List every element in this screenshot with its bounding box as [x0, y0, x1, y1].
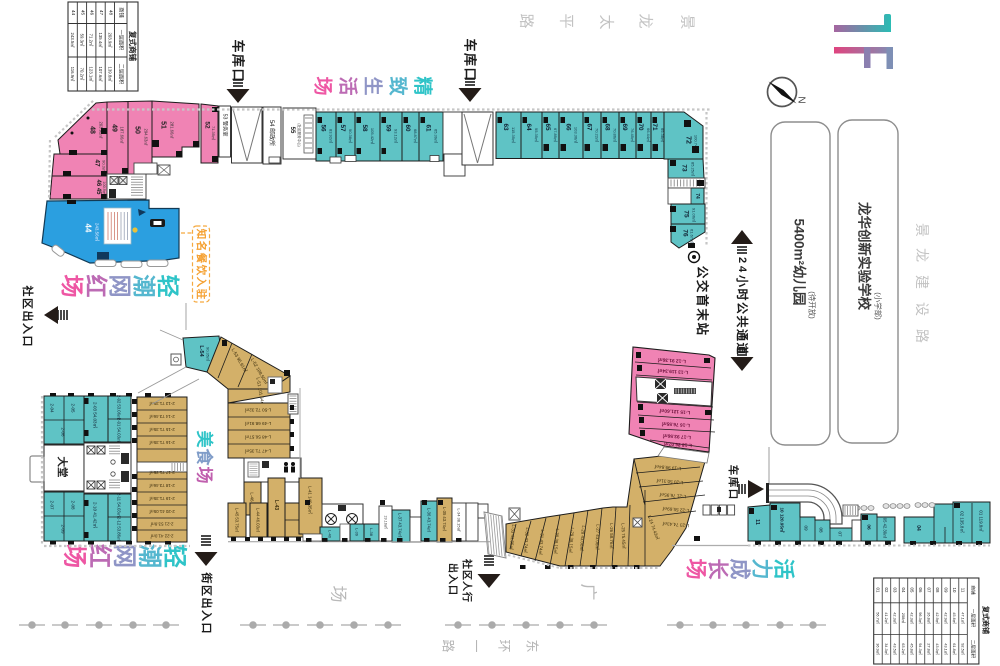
svg-text:55: 55: [289, 127, 295, 134]
svg-text:2-21 53.8㎡: 2-21 53.8㎡: [150, 522, 174, 528]
svg-text:2-22 41.0㎡: 2-22 41.0㎡: [150, 534, 174, 540]
svg-text:08: 08: [819, 527, 824, 533]
svg-text:2-04: 2-04: [50, 403, 55, 413]
svg-text:L-37 43.74㎡: L-37 43.74㎡: [398, 513, 404, 538]
svg-text:通: 通: [735, 329, 750, 341]
svg-text:243.56㎡: 243.56㎡: [95, 223, 101, 242]
svg-text:42.9㎡: 42.9㎡: [944, 612, 949, 624]
svg-text:65.39㎡: 65.39㎡: [434, 129, 440, 143]
svg-text:90.35㎡: 90.35㎡: [206, 347, 212, 361]
svg-text:库: 库: [727, 477, 740, 488]
svg-text:精: 精: [412, 76, 435, 95]
svg-text:车: 车: [463, 38, 478, 51]
svg-text:11: 11: [961, 588, 966, 593]
svg-text:70.86㎡: 70.86㎡: [613, 128, 619, 142]
svg-text:2-08: 2-08: [71, 500, 76, 510]
svg-text:商铺: 商铺: [970, 585, 977, 595]
svg-text:41.2㎡: 41.2㎡: [884, 612, 889, 624]
svg-text:187.66㎡: 187.66㎡: [120, 127, 126, 145]
svg-text:67: 67: [586, 123, 593, 131]
svg-text:63.2㎡: 63.2㎡: [901, 643, 906, 655]
svg-text:115.35㎡: 115.35㎡: [511, 127, 517, 143]
svg-text:2-03 54.03㎡: 2-03 54.03㎡: [93, 402, 99, 429]
svg-text:致: 致: [387, 76, 410, 96]
svg-text:57: 57: [339, 124, 346, 132]
svg-text:L-35 43.74㎡: L-35 43.74㎡: [442, 507, 448, 532]
svg-text:龙: 龙: [637, 13, 654, 28]
svg-text:网: 网: [107, 275, 133, 298]
svg-text:72: 72: [685, 136, 692, 144]
svg-text:(待开放): (待开放): [808, 291, 818, 319]
svg-text:04: 04: [915, 525, 921, 531]
svg-text:47: 47: [98, 10, 104, 16]
svg-text:42.3㎡: 42.3㎡: [892, 612, 897, 624]
svg-text:94.3㎡: 94.3㎡: [918, 643, 923, 655]
svg-text:70: 70: [637, 123, 644, 131]
svg-text:76: 76: [682, 229, 689, 237]
svg-text:L-50 72.32㎡: L-50 72.32㎡: [244, 408, 271, 414]
svg-text:2-07: 2-07: [50, 500, 55, 510]
svg-text:一层面积: 一层面积: [118, 30, 125, 51]
svg-text:美: 美: [195, 431, 215, 449]
svg-text:71: 71: [651, 123, 658, 131]
svg-text:48: 48: [89, 126, 96, 134]
svg-text:47.1㎡: 47.1㎡: [961, 612, 966, 624]
svg-text:驻: 驻: [195, 289, 208, 300]
svg-text:二层面积: 二层面积: [970, 640, 977, 659]
svg-text:2-11 54.03㎡: 2-11 54.03㎡: [117, 493, 123, 518]
svg-text:L-39: L-39: [355, 528, 360, 537]
svg-text:66: 66: [565, 123, 572, 131]
svg-text:公: 公: [735, 302, 749, 314]
svg-text:90.3㎡: 90.3㎡: [102, 160, 108, 172]
svg-text:75: 75: [683, 210, 690, 218]
svg-text:2-09: 2-09: [61, 524, 66, 534]
svg-text:10: 10: [952, 588, 957, 593]
svg-text:潮: 潮: [136, 544, 163, 568]
svg-text:食: 食: [195, 449, 215, 467]
svg-text:社: 社: [21, 285, 35, 297]
svg-text:活: 活: [337, 76, 360, 95]
svg-text:N: N: [796, 96, 807, 103]
svg-text:69: 69: [621, 123, 628, 131]
svg-text:L-38: L-38: [369, 528, 374, 537]
svg-text:44: 44: [84, 224, 93, 233]
svg-text:09: 09: [944, 588, 949, 593]
svg-text:07: 07: [838, 531, 843, 537]
svg-text:广: 广: [579, 584, 598, 601]
svg-text:场: 场: [684, 559, 707, 580]
svg-text:场: 场: [329, 586, 348, 603]
svg-text:L-26 58.76㎡: L-26 58.76㎡: [609, 523, 615, 549]
svg-text:56: 56: [320, 124, 327, 132]
svg-text:70.22㎡: 70.22㎡: [595, 128, 601, 142]
svg-text:48: 48: [107, 10, 113, 16]
svg-text:281.66㎡: 281.66㎡: [170, 122, 176, 140]
svg-text:53 警务室: 53 警务室: [222, 114, 230, 137]
svg-text:73: 73: [681, 164, 688, 172]
svg-text:54 邮政所: 54 邮政所: [268, 120, 276, 146]
svg-text:入: 入: [195, 277, 207, 288]
svg-text:52: 52: [204, 121, 211, 129]
svg-text:45.8㎡: 45.8㎡: [909, 643, 914, 655]
svg-text:03: 03: [892, 588, 897, 593]
svg-text:2-05: 2-05: [71, 403, 76, 413]
svg-text:潮: 潮: [131, 275, 157, 298]
svg-text:L-25 75.45㎡: L-25 75.45㎡: [621, 523, 628, 549]
svg-text:76.45㎡: 76.45㎡: [630, 128, 636, 142]
svg-text:街: 街: [200, 572, 214, 584]
svg-text:11: 11: [754, 519, 760, 525]
svg-text:5400m²幼儿园: 5400m²幼儿园: [792, 218, 808, 305]
svg-text:口: 口: [727, 489, 739, 500]
svg-text:路: 路: [914, 329, 930, 343]
svg-text:一层面积: 一层面积: [970, 609, 977, 628]
svg-text:43.5㎡: 43.5㎡: [892, 643, 897, 655]
svg-text:2-19 71.35㎡: 2-19 71.35㎡: [149, 496, 175, 502]
svg-text:60: 60: [404, 124, 411, 132]
svg-text:复式商铺: 复式商铺: [128, 30, 138, 61]
svg-text:59.3㎡: 59.3㎡: [80, 34, 86, 47]
svg-text:场: 场: [59, 275, 85, 298]
svg-text:L-45 53.75㎡: L-45 53.75㎡: [235, 508, 241, 533]
svg-text:(小学部): (小学部): [874, 292, 884, 320]
svg-text:71.2㎡: 71.2㎡: [89, 34, 95, 47]
svg-text:90.38㎡: 90.38㎡: [348, 129, 354, 143]
svg-text:116.9㎡: 116.9㎡: [70, 67, 76, 82]
svg-text:50: 50: [134, 126, 141, 134]
svg-text:景: 景: [679, 14, 696, 29]
svg-text:43.0㎡: 43.0㎡: [935, 643, 940, 655]
svg-text:26.8㎡: 26.8㎡: [927, 612, 932, 624]
svg-text:2: 2: [736, 257, 748, 263]
svg-text:路: 路: [518, 13, 535, 28]
svg-text:51: 51: [160, 121, 167, 129]
svg-text:知: 知: [195, 229, 208, 240]
svg-text:交: 交: [695, 280, 710, 293]
svg-text:2-16 71.35㎡: 2-16 71.35㎡: [149, 440, 175, 446]
svg-text:力: 力: [750, 559, 773, 580]
svg-text:区: 区: [461, 570, 473, 580]
svg-text:05: 05: [909, 588, 914, 593]
svg-text:2-14 73.46㎡: 2-14 73.46㎡: [149, 414, 175, 420]
svg-text:建: 建: [914, 275, 930, 289]
svg-text:42.9㎡: 42.9㎡: [935, 612, 940, 624]
svg-text:96.3㎡: 96.3㎡: [918, 612, 923, 624]
svg-text:61.67㎡: 61.67㎡: [690, 229, 696, 243]
svg-text:95.35㎡: 95.35㎡: [534, 128, 540, 142]
svg-text:车: 车: [727, 465, 740, 476]
svg-text:设: 设: [914, 302, 930, 316]
svg-text:(社区服务中心): (社区服务中心): [297, 123, 302, 146]
svg-text:L-47 71.35㎡: L-47 71.35㎡: [244, 449, 271, 455]
svg-text:34.3㎡: 34.3㎡: [884, 643, 889, 655]
svg-text:103.36㎡: 103.36㎡: [574, 127, 580, 143]
svg-text:成: 成: [728, 559, 752, 580]
svg-text:生: 生: [362, 76, 385, 95]
svg-text:2-20 41.05㎡: 2-20 41.05㎡: [149, 509, 175, 515]
svg-text:68.87㎡: 68.87㎡: [413, 129, 419, 143]
svg-text:243.5㎡: 243.5㎡: [70, 32, 76, 48]
svg-text:2-18 73.46㎡: 2-18 73.46㎡: [149, 483, 175, 489]
svg-text:时: 时: [735, 288, 750, 300]
svg-text:2-15 71.35㎡: 2-15 71.35㎡: [149, 427, 175, 433]
svg-text:出: 出: [200, 598, 214, 609]
svg-text:区: 区: [200, 585, 213, 596]
svg-text:01: 01: [875, 588, 880, 593]
svg-text:42.3㎡: 42.3㎡: [909, 612, 914, 624]
svg-text:库: 库: [231, 54, 246, 67]
svg-text:入: 入: [21, 323, 34, 334]
svg-text:路: 路: [441, 639, 456, 652]
svg-text:02 135.8㎡: 02 135.8㎡: [960, 511, 966, 533]
svg-text:43.1㎡: 43.1㎡: [944, 643, 949, 655]
svg-text:L-40: L-40: [328, 530, 333, 539]
svg-text:10 120.95㎡: 10 120.95㎡: [780, 507, 786, 532]
svg-text:大堂: 大堂: [56, 457, 69, 478]
svg-text:轻: 轻: [155, 275, 181, 298]
svg-text:名: 名: [195, 241, 208, 252]
svg-text:餐: 餐: [195, 252, 208, 264]
svg-text:场: 场: [312, 76, 334, 95]
svg-text:车: 车: [231, 39, 246, 52]
svg-text:19.16㎡: 19.16㎡: [384, 515, 389, 529]
svg-text:74: 74: [694, 193, 700, 199]
svg-text:出: 出: [21, 311, 35, 322]
svg-text:45: 45: [80, 10, 86, 16]
svg-text:294.63㎡: 294.63㎡: [144, 129, 150, 147]
svg-text:场: 场: [195, 467, 214, 484]
svg-text:共: 共: [735, 315, 750, 327]
svg-text:70.2㎡: 70.2㎡: [80, 68, 86, 81]
svg-text:L-49 68.91㎡: L-49 68.91㎡: [244, 421, 271, 427]
svg-text:2-12 53.86㎡: 2-12 53.86㎡: [117, 517, 123, 542]
svg-text:91.06㎡: 91.06㎡: [692, 208, 698, 222]
svg-text:商铺: 商铺: [118, 7, 126, 17]
svg-text:首: 首: [695, 294, 710, 307]
svg-text:64: 64: [525, 123, 532, 131]
svg-text:出: 出: [447, 563, 460, 573]
svg-text:36.9㎡: 36.9㎡: [875, 643, 880, 655]
svg-text:区: 区: [21, 298, 34, 309]
svg-text:场: 场: [61, 544, 88, 568]
svg-text:123.1㎡: 123.1㎡: [89, 66, 95, 82]
svg-text:社: 社: [461, 558, 474, 569]
svg-text:景: 景: [914, 223, 930, 237]
svg-text:59: 59: [385, 124, 392, 132]
svg-text:105.42㎡: 105.42㎡: [370, 128, 376, 144]
svg-text:2-01 54.03㎡: 2-01 54.03㎡: [117, 418, 123, 443]
svg-text:2-17 71.35㎡: 2-17 71.35㎡: [149, 470, 175, 476]
svg-text:轻: 轻: [161, 544, 189, 568]
svg-text:67.89㎡: 67.89㎡: [553, 128, 559, 142]
svg-text:2-10 41.42㎡: 2-10 41.42㎡: [93, 502, 99, 529]
svg-text:L-27 43.06㎡: L-27 43.06㎡: [595, 524, 602, 550]
svg-text:46: 46: [89, 10, 95, 16]
svg-text:107.6㎡: 107.6㎡: [98, 66, 104, 82]
svg-text:06: 06: [866, 524, 872, 530]
svg-text:45.6㎡: 45.6㎡: [952, 612, 957, 624]
svg-text:入: 入: [200, 610, 213, 621]
svg-text:人: 人: [461, 581, 474, 592]
svg-text:68: 68: [604, 123, 611, 131]
svg-text:L-36 43.74㎡: L-36 43.74㎡: [427, 508, 433, 533]
svg-text:L-46: L-46: [250, 492, 255, 502]
svg-text:二层面积: 二层面积: [118, 64, 125, 85]
svg-text:龙华创新实验学校: 龙华创新实验学校: [857, 201, 873, 310]
svg-text:口: 口: [21, 336, 34, 347]
svg-text:口: 口: [200, 623, 213, 634]
svg-text:环: 环: [497, 639, 512, 652]
svg-text:一: 一: [469, 639, 484, 652]
svg-text:行: 行: [461, 591, 474, 602]
svg-text:L-34 38.15㎡: L-34 38.15㎡: [457, 508, 463, 531]
svg-text:56.7㎡: 56.7㎡: [875, 612, 880, 624]
svg-text:红: 红: [86, 544, 114, 568]
svg-text:02: 02: [884, 588, 889, 593]
svg-text:47: 47: [94, 159, 101, 167]
svg-text:2-02 53.06㎡: 2-02 53.06㎡: [117, 395, 123, 420]
svg-text:网: 网: [111, 544, 138, 568]
svg-text:平: 平: [558, 13, 575, 28]
svg-text:65: 65: [544, 123, 551, 131]
svg-text:饮: 饮: [195, 264, 208, 276]
svg-text:61: 61: [425, 124, 432, 132]
svg-text:100.9㎡: 100.9㎡: [102, 181, 107, 195]
svg-text:长: 长: [706, 559, 729, 581]
svg-text:92.5㎡: 92.5㎡: [961, 643, 966, 655]
svg-text:63: 63: [502, 123, 509, 131]
svg-text:83.92㎡: 83.92㎡: [329, 129, 335, 143]
svg-text:龙: 龙: [914, 248, 930, 262]
svg-text:活: 活: [772, 559, 795, 580]
svg-text:05 42.30㎡: 05 42.30㎡: [883, 518, 889, 539]
svg-text:L-44 46.03㎡: L-44 46.03㎡: [256, 508, 262, 533]
svg-text:末: 末: [695, 307, 710, 321]
svg-text:L-54: L-54: [198, 345, 204, 357]
svg-text:203.9㎡: 203.9㎡: [107, 32, 113, 48]
svg-text:06: 06: [918, 588, 923, 593]
svg-text:库: 库: [463, 53, 478, 66]
svg-text:135.4㎡: 135.4㎡: [98, 32, 104, 48]
svg-text:85.25㎡: 85.25㎡: [691, 162, 697, 176]
svg-text:58: 58: [361, 124, 368, 132]
svg-text:258㎡: 258㎡: [901, 613, 906, 623]
svg-text:复式商铺: 复式商铺: [982, 605, 991, 634]
svg-text:东: 东: [525, 639, 540, 652]
svg-text:44: 44: [70, 10, 76, 16]
svg-text:L-48 56.57㎡: L-48 56.57㎡: [244, 435, 271, 441]
svg-text:公: 公: [695, 266, 709, 279]
svg-text:46 45: 46 45: [95, 179, 101, 195]
svg-text:04: 04: [901, 588, 906, 593]
svg-text:71.35㎡: 71.35㎡: [211, 126, 217, 140]
svg-text:49: 49: [111, 124, 118, 132]
svg-text:红: 红: [83, 275, 109, 298]
svg-text:07: 07: [927, 588, 932, 593]
svg-text:入: 入: [447, 574, 459, 584]
svg-text:L-43: L-43: [273, 500, 279, 511]
svg-text:08: 08: [935, 588, 940, 593]
svg-text:09: 09: [804, 525, 809, 531]
svg-text:01 119.8㎡: 01 119.8㎡: [979, 510, 985, 532]
svg-text:139.8㎡: 139.8㎡: [107, 66, 113, 82]
svg-text:2-06: 2-06: [61, 427, 66, 437]
svg-text:站: 站: [695, 323, 710, 336]
svg-text:口: 口: [447, 585, 458, 595]
svg-text:93.12㎡: 93.12㎡: [394, 129, 400, 143]
svg-text:61.8㎡: 61.8㎡: [952, 643, 957, 655]
svg-text:太: 太: [598, 14, 615, 29]
svg-text:27.8㎡: 27.8㎡: [927, 643, 932, 655]
svg-text:小: 小: [735, 275, 750, 287]
svg-text:4: 4: [736, 266, 748, 273]
